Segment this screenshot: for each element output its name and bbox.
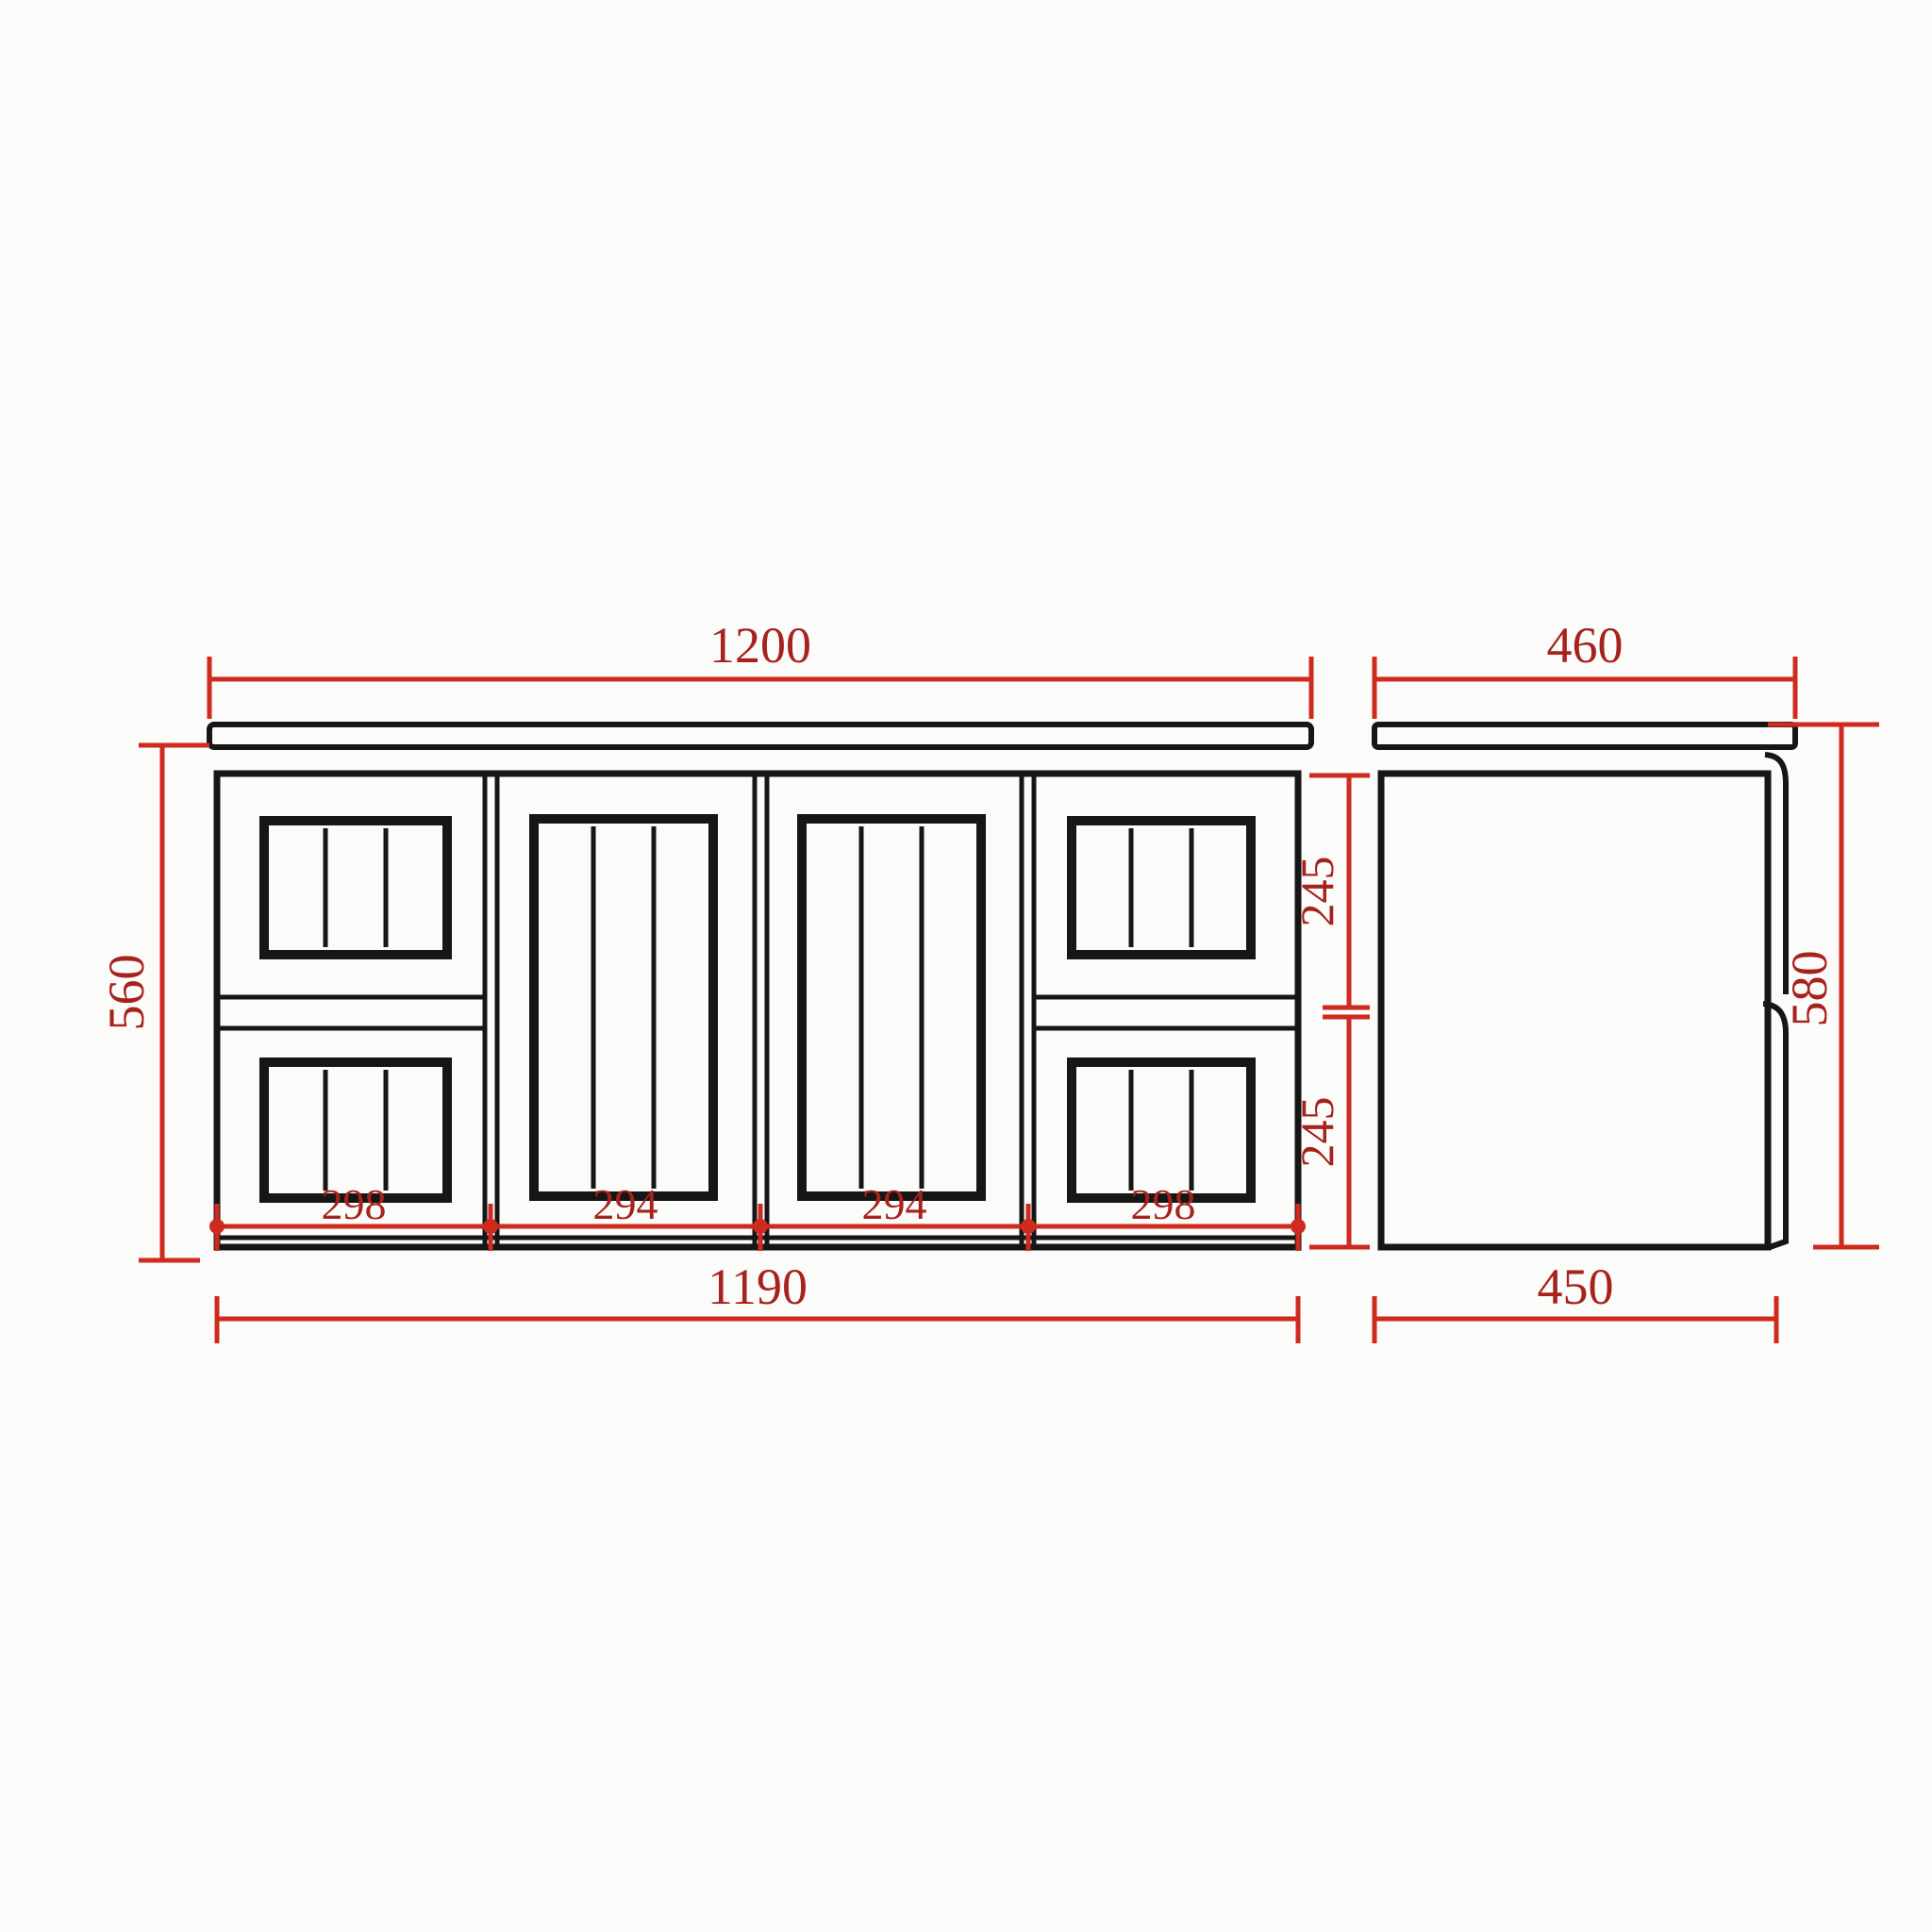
dim-1200-label: 1200 xyxy=(709,617,811,674)
drawer-panel-bottom-left xyxy=(264,1062,447,1198)
drawer-panel-top-left xyxy=(264,821,447,955)
front-cabinet-body xyxy=(217,774,1298,1247)
side-cabinet-body xyxy=(1381,774,1768,1247)
side-countertop xyxy=(1374,724,1795,747)
door-panel-left xyxy=(534,819,713,1196)
panel-slat-lines xyxy=(325,826,1191,1191)
dim-560: 560 xyxy=(98,745,209,1260)
dim-segments: 298 294 294 298 xyxy=(209,1180,1306,1251)
door-panel-right xyxy=(802,819,981,1196)
dim-580-label: 580 xyxy=(1781,951,1838,1027)
dim-245-lower: 245 xyxy=(1291,1017,1370,1247)
dim-seg4-label: 298 xyxy=(1131,1180,1196,1228)
vanity-technical-drawing: 1200 460 560 580 245 245 xyxy=(0,0,1932,1932)
dim-245-lower-label: 245 xyxy=(1291,1097,1343,1168)
dim-450: 450 xyxy=(1374,1258,1776,1343)
dim-1200: 1200 xyxy=(209,617,1311,719)
dim-245-upper: 245 xyxy=(1291,775,1370,1008)
drawer-panel-bottom-right xyxy=(1072,1062,1251,1198)
front-view xyxy=(209,724,1311,1247)
dim-450-label: 450 xyxy=(1538,1258,1614,1315)
dim-245-upper-label: 245 xyxy=(1291,857,1343,927)
dim-seg2-label: 294 xyxy=(593,1180,658,1228)
dim-seg1-label: 298 xyxy=(322,1180,387,1228)
drawer-panel-top-right xyxy=(1072,821,1251,955)
dim-560-label: 560 xyxy=(98,955,155,1031)
front-column-dividers xyxy=(485,774,1034,1247)
dim-1190: 1190 xyxy=(217,1258,1298,1343)
front-countertop xyxy=(209,724,1311,747)
side-view xyxy=(1374,724,1795,1247)
dim-seg3-label: 294 xyxy=(862,1180,927,1228)
dim-460: 460 xyxy=(1374,617,1795,719)
drawing-svg: 1200 460 560 580 245 245 xyxy=(0,0,1932,1932)
dim-460-label: 460 xyxy=(1547,617,1624,674)
dim-1190-label: 1190 xyxy=(708,1258,808,1315)
